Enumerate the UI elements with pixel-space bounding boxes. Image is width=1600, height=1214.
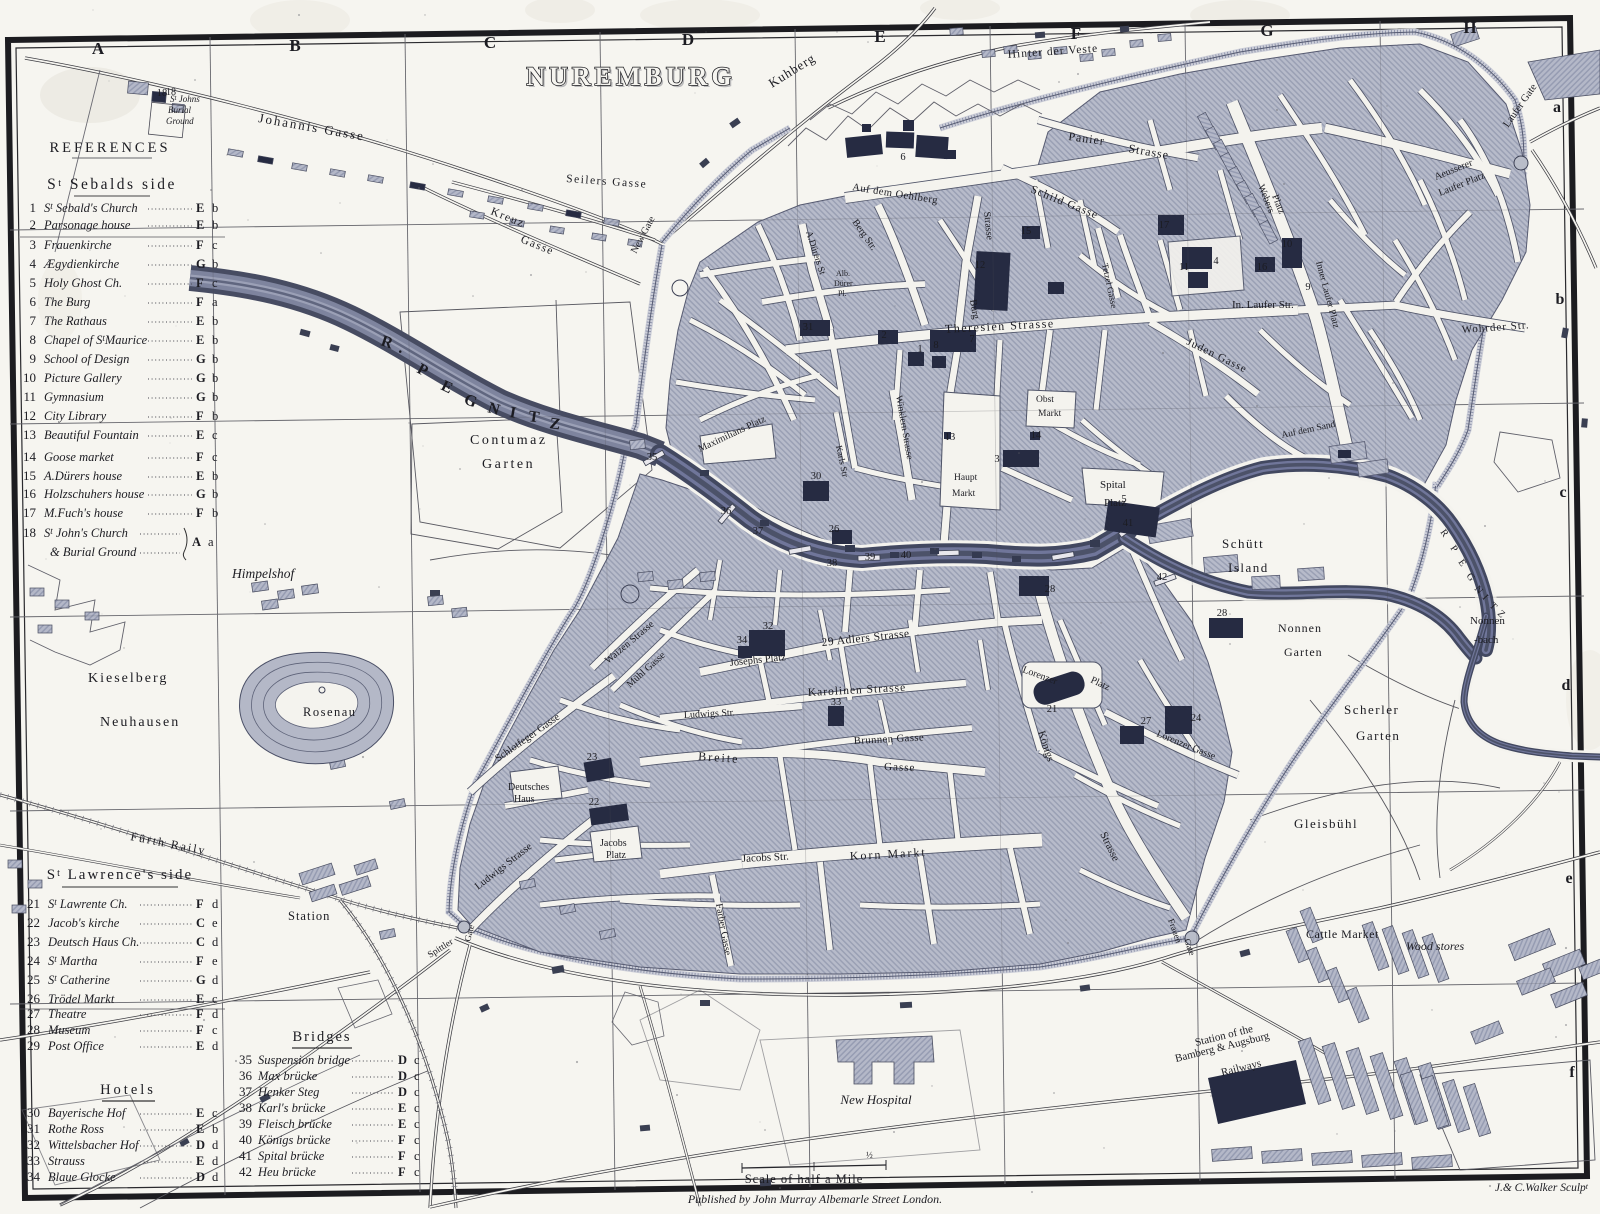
svg-text:G: G — [196, 371, 206, 385]
svg-text:Schütt: Schütt — [1222, 536, 1264, 551]
svg-text:A: A — [92, 39, 105, 58]
svg-text:7: 7 — [30, 313, 37, 328]
svg-text:E: E — [874, 27, 885, 46]
svg-text:Chapel of StMaurice: Chapel of StMaurice — [44, 333, 148, 347]
svg-text:31: 31 — [803, 322, 814, 333]
svg-text:b: b — [1556, 291, 1565, 308]
svg-text:H: H — [1463, 18, 1476, 37]
svg-text:D: D — [398, 1085, 407, 1099]
svg-text:28: 28 — [1217, 608, 1228, 619]
svg-text:Gasse: Gasse — [884, 761, 916, 774]
svg-text:3: 3 — [30, 237, 37, 252]
svg-text:13: 13 — [23, 427, 36, 442]
svg-text:E: E — [196, 1106, 204, 1120]
svg-text:10: 10 — [1282, 239, 1293, 250]
svg-text:38: 38 — [239, 1100, 252, 1115]
svg-text:F: F — [196, 409, 204, 423]
svg-text:37: 37 — [239, 1084, 253, 1099]
svg-text:E: E — [196, 201, 204, 215]
svg-text:Ægydienkirche: Ægydienkirche — [43, 257, 120, 271]
svg-text:16: 16 — [1257, 262, 1268, 273]
svg-text:D: D — [398, 1069, 407, 1083]
svg-text:Jacobs Str.: Jacobs Str. — [742, 851, 790, 865]
svg-text:Alb.: Alb. — [836, 269, 850, 278]
svg-text:d: d — [212, 1039, 219, 1053]
svg-text:39: 39 — [865, 552, 876, 563]
svg-text:Gymnasium: Gymnasium — [44, 390, 104, 404]
svg-text:d: d — [212, 897, 219, 911]
svg-text:Fleisch brücke: Fleisch brücke — [257, 1117, 332, 1131]
svg-text:37: 37 — [753, 526, 764, 537]
svg-text:22: 22 — [27, 915, 40, 930]
svg-text:27: 27 — [1141, 716, 1152, 727]
svg-text:28: 28 — [1045, 584, 1056, 595]
svg-text:Picture Gallery: Picture Gallery — [43, 371, 122, 385]
svg-text:1: 1 — [30, 200, 37, 215]
svg-text:NUREMBURG: NUREMBURG — [526, 62, 735, 91]
svg-text:9: 9 — [1305, 282, 1310, 293]
svg-text:F: F — [196, 1023, 204, 1037]
svg-text:14: 14 — [1031, 430, 1042, 441]
svg-text:b: b — [212, 352, 218, 366]
svg-text:A: A — [192, 535, 201, 549]
svg-text:e: e — [1565, 870, 1572, 887]
svg-text:Kieselberg: Kieselberg — [88, 671, 168, 686]
svg-text:17: 17 — [1159, 220, 1170, 231]
svg-text:Henker Steg: Henker Steg — [257, 1085, 319, 1099]
svg-text:Scherler: Scherler — [1344, 702, 1399, 717]
svg-text:Rothe Ross: Rothe Ross — [47, 1122, 104, 1136]
svg-text:f: f — [1569, 1064, 1575, 1081]
svg-text:33: 33 — [27, 1153, 40, 1168]
svg-text:F: F — [196, 897, 204, 911]
svg-text:36: 36 — [239, 1068, 253, 1083]
svg-text:Goose market: Goose market — [44, 450, 114, 464]
svg-text:d: d — [1562, 677, 1571, 694]
svg-text:b: b — [212, 333, 218, 347]
svg-text:35: 35 — [239, 1052, 252, 1067]
svg-text:Garten: Garten — [482, 457, 535, 472]
svg-text:Max brücke: Max brücke — [257, 1069, 318, 1083]
svg-text:½: ½ — [866, 1150, 873, 1160]
svg-text:F: F — [1071, 24, 1081, 43]
svg-text:New Hospital: New Hospital — [839, 1092, 912, 1107]
svg-text:C: C — [196, 916, 205, 930]
svg-text:Published by John Murray Albem: Published by John Murray Albemarle Stree… — [687, 1192, 942, 1206]
svg-text:Obst: Obst — [1036, 395, 1054, 405]
svg-text:C: C — [484, 33, 496, 52]
svg-text:Blaue Glocke: Blaue Glocke — [48, 1170, 116, 1184]
svg-text:Neuhausen: Neuhausen — [100, 715, 180, 730]
svg-text:M.Fuch's house: M.Fuch's house — [43, 506, 123, 520]
svg-text:Platz: Platz — [606, 850, 627, 861]
svg-text:& Burial Ground: & Burial Ground — [50, 545, 137, 559]
svg-text:11: 11 — [23, 389, 36, 404]
svg-text:Haus: Haus — [514, 794, 535, 805]
svg-text:15: 15 — [1021, 226, 1032, 237]
svg-text:J.& C.Walker Sculpt: J.& C.Walker Sculpt — [1495, 1182, 1589, 1194]
svg-text:D: D — [196, 1138, 205, 1152]
svg-text:c: c — [212, 992, 218, 1006]
svg-text:D: D — [398, 1053, 407, 1067]
svg-text:In. Laufer Str.: In. Laufer Str. — [1232, 299, 1294, 311]
svg-text:d: d — [212, 1170, 219, 1184]
svg-text:Breite: Breite — [698, 749, 740, 766]
svg-text:Wood stores: Wood stores — [1406, 939, 1464, 953]
svg-text:12: 12 — [975, 260, 986, 271]
svg-text:G: G — [196, 390, 206, 404]
svg-text:30: 30 — [27, 1105, 40, 1120]
svg-text:F: F — [398, 1133, 406, 1147]
svg-text:c: c — [212, 1106, 218, 1120]
svg-text:d: d — [212, 973, 219, 987]
svg-text:St Lawrence's side: St Lawrence's side — [47, 867, 193, 883]
svg-text:City Library: City Library — [44, 409, 107, 423]
svg-text:F: F — [196, 954, 204, 968]
svg-text:Heu brücke: Heu brücke — [257, 1165, 316, 1179]
svg-text:A.Dürers house: A.Dürers house — [43, 469, 122, 483]
svg-text:9: 9 — [30, 351, 37, 366]
svg-text:F: F — [196, 295, 204, 309]
svg-text:Scale of half a Mile: Scale of half a Mile — [745, 1172, 864, 1186]
svg-text:18: 18 — [23, 525, 36, 540]
svg-text:F: F — [196, 276, 204, 290]
svg-text:F: F — [196, 238, 204, 252]
svg-text:Strauss: Strauss — [48, 1154, 85, 1168]
svg-text:Spital brücke: Spital brücke — [258, 1149, 325, 1163]
svg-text:Trödel Markt: Trödel Markt — [48, 992, 115, 1006]
svg-text:Frauenkirche: Frauenkirche — [43, 238, 112, 252]
svg-text:c: c — [212, 450, 218, 464]
svg-text:b: b — [212, 1122, 218, 1136]
svg-text:Pl.: Pl. — [838, 289, 847, 298]
svg-text:Bridges: Bridges — [292, 1029, 351, 1045]
svg-text:Jacobs: Jacobs — [600, 838, 627, 849]
svg-text:Haupt: Haupt — [954, 473, 978, 483]
svg-text:a: a — [208, 535, 214, 549]
svg-text:11: 11 — [1179, 262, 1189, 273]
svg-text:21: 21 — [27, 896, 40, 911]
svg-text:5: 5 — [1121, 494, 1126, 505]
svg-text:E: E — [196, 1154, 204, 1168]
svg-text:6: 6 — [900, 152, 905, 163]
svg-text:Garten: Garten — [1284, 645, 1323, 659]
svg-text:d: d — [212, 935, 219, 949]
svg-text:33: 33 — [831, 697, 842, 708]
svg-text:e: e — [212, 916, 218, 930]
svg-text:a: a — [212, 295, 218, 309]
svg-text:G: G — [196, 973, 206, 987]
svg-text:-bach: -bach — [1474, 634, 1499, 646]
svg-text:Spital: Spital — [1100, 479, 1126, 491]
svg-text:42: 42 — [1157, 572, 1168, 583]
svg-text:The Burg: The Burg — [44, 295, 90, 309]
svg-text:REFERENCES: REFERENCES — [49, 140, 170, 156]
svg-text:Parsonage house: Parsonage house — [43, 218, 131, 232]
svg-text:d: d — [212, 1138, 219, 1152]
svg-text:34: 34 — [737, 635, 748, 646]
svg-text:4: 4 — [30, 256, 37, 271]
svg-text:c: c — [414, 1053, 420, 1067]
svg-text:30: 30 — [811, 471, 822, 482]
svg-text:b: b — [212, 371, 218, 385]
svg-text:Garten: Garten — [1356, 728, 1400, 743]
svg-text:G: G — [196, 487, 206, 501]
svg-text:12: 12 — [23, 408, 36, 423]
svg-text:Cattle Market: Cattle Market — [1306, 927, 1379, 941]
svg-text:40: 40 — [901, 550, 912, 561]
svg-text:23: 23 — [27, 934, 40, 949]
svg-text:41: 41 — [239, 1148, 252, 1163]
svg-text:14: 14 — [23, 449, 37, 464]
svg-text:G: G — [1260, 21, 1273, 40]
svg-text:School of Design: School of Design — [44, 352, 129, 366]
svg-text:E: E — [196, 218, 204, 232]
svg-text:St Sebalds side: St Sebalds side — [47, 176, 177, 193]
svg-text:Rosenau: Rosenau — [303, 705, 357, 719]
svg-text:E: E — [398, 1117, 406, 1131]
svg-text:38: 38 — [827, 558, 838, 569]
svg-text:St Lawrente Ch.: St Lawrente Ch. — [48, 897, 128, 911]
svg-text:Königs brücke: Königs brücke — [257, 1133, 331, 1147]
svg-text:6: 6 — [30, 294, 37, 309]
svg-text:15: 15 — [23, 468, 36, 483]
svg-text:Beautiful Fountain: Beautiful Fountain — [44, 428, 139, 442]
svg-text:b: b — [212, 469, 218, 483]
svg-text:St John's Church: St John's Church — [44, 526, 128, 540]
svg-text:5: 5 — [30, 275, 37, 290]
svg-text:8: 8 — [933, 340, 938, 351]
svg-text:Suspension bridge: Suspension bridge — [258, 1053, 350, 1067]
svg-text:Wittelsbacher Hof: Wittelsbacher Hof — [48, 1138, 140, 1152]
svg-text:24: 24 — [1191, 713, 1202, 724]
svg-text:2: 2 — [881, 330, 886, 341]
svg-text:32: 32 — [763, 621, 774, 632]
svg-text:Karl's brücke: Karl's brücke — [257, 1101, 326, 1115]
svg-text:Hotels: Hotels — [100, 1082, 156, 1098]
svg-text:Post Office: Post Office — [47, 1039, 104, 1053]
svg-text:c: c — [1559, 484, 1566, 501]
svg-text:b: b — [212, 218, 218, 232]
svg-text:18: 18 — [166, 87, 176, 98]
svg-text:3: 3 — [994, 454, 999, 465]
svg-text:E: E — [196, 314, 204, 328]
svg-text:36: 36 — [721, 506, 732, 517]
svg-text:Museum: Museum — [47, 1023, 90, 1037]
svg-text:c: c — [414, 1149, 420, 1163]
svg-text:G: G — [196, 257, 206, 271]
svg-text:25: 25 — [27, 972, 40, 987]
svg-text:St Catherine: St Catherine — [48, 973, 110, 987]
svg-text:Dürer: Dürer — [834, 279, 853, 288]
svg-text:16: 16 — [23, 486, 37, 501]
svg-text:27: 27 — [27, 1006, 41, 1021]
svg-text:28: 28 — [27, 1022, 40, 1037]
svg-text:b: b — [212, 314, 218, 328]
svg-text:10: 10 — [23, 370, 36, 385]
svg-text:G: G — [196, 352, 206, 366]
svg-text:24: 24 — [27, 953, 41, 968]
svg-text:b: b — [212, 390, 218, 404]
svg-text:23: 23 — [587, 752, 598, 763]
svg-text:21: 21 — [1047, 704, 1058, 715]
svg-text:Holzschuhers house: Holzschuhers house — [43, 487, 145, 501]
svg-text:E: E — [196, 1122, 204, 1136]
svg-text:Deutsch Haus Ch.: Deutsch Haus Ch. — [47, 935, 139, 949]
svg-text:8: 8 — [30, 332, 37, 347]
svg-text:18: 18 — [157, 88, 168, 99]
svg-text:35: 35 — [647, 452, 658, 463]
svg-text:41: 41 — [1123, 518, 1134, 529]
svg-text:Gleisbühl: Gleisbühl — [1294, 816, 1358, 831]
svg-text:32: 32 — [27, 1137, 40, 1152]
svg-text:17: 17 — [23, 505, 37, 520]
svg-text:Jacob's kirche: Jacob's kirche — [48, 916, 120, 930]
svg-text:42: 42 — [239, 1164, 252, 1179]
svg-text:D: D — [682, 30, 694, 49]
svg-text:Deutsches: Deutsches — [508, 782, 549, 793]
svg-text:Burial: Burial — [168, 105, 192, 115]
svg-text:c: c — [414, 1165, 420, 1179]
svg-text:b: b — [212, 506, 218, 520]
svg-text:C: C — [196, 935, 205, 949]
svg-text:29: 29 — [27, 1038, 40, 1053]
svg-text:c: c — [414, 1069, 420, 1083]
svg-text:E: E — [196, 428, 204, 442]
svg-text:E: E — [196, 992, 204, 1006]
svg-text:Bayerische Hof: Bayerische Hof — [48, 1106, 127, 1120]
svg-text:34: 34 — [27, 1169, 41, 1184]
svg-text:The Rathaus: The Rathaus — [44, 314, 107, 328]
svg-text:7: 7 — [969, 334, 974, 345]
svg-text:40: 40 — [239, 1132, 252, 1147]
svg-text:c: c — [212, 1023, 218, 1037]
svg-text:Himpelshof: Himpelshof — [231, 566, 296, 581]
svg-text:Station: Station — [288, 909, 330, 923]
svg-text:St Sebald's Church: St Sebald's Church — [44, 201, 138, 215]
svg-text:31: 31 — [27, 1121, 40, 1136]
svg-text:22: 22 — [589, 797, 600, 808]
svg-text:Nonnen: Nonnen — [1470, 615, 1505, 627]
svg-text:E: E — [196, 1039, 204, 1053]
svg-text:13: 13 — [945, 432, 956, 443]
svg-text:e: e — [212, 954, 218, 968]
svg-text:E: E — [398, 1101, 406, 1115]
svg-text:Ground: Ground — [166, 116, 194, 126]
svg-text:E: E — [196, 333, 204, 347]
svg-text:b: b — [212, 201, 218, 215]
svg-text:Nonnen: Nonnen — [1278, 621, 1322, 635]
svg-text:1: 1 — [917, 344, 922, 355]
svg-text:D: D — [196, 1170, 205, 1184]
svg-text:Island: Island — [1228, 560, 1269, 575]
svg-text:E: E — [196, 469, 204, 483]
svg-text:Contumaz: Contumaz — [470, 433, 548, 448]
svg-text:4: 4 — [1213, 256, 1219, 267]
svg-text:b: b — [212, 487, 218, 501]
svg-text:39: 39 — [239, 1116, 252, 1131]
svg-text:a: a — [1553, 99, 1561, 116]
svg-text:26: 26 — [829, 524, 840, 535]
svg-text:F: F — [398, 1149, 406, 1163]
svg-text:F: F — [196, 450, 204, 464]
svg-text:Markt: Markt — [952, 489, 976, 499]
svg-text:d: d — [212, 1154, 219, 1168]
svg-text:F: F — [398, 1165, 406, 1179]
svg-text:Holy Ghost Ch.: Holy Ghost Ch. — [43, 276, 122, 290]
svg-text:B: B — [289, 36, 300, 55]
